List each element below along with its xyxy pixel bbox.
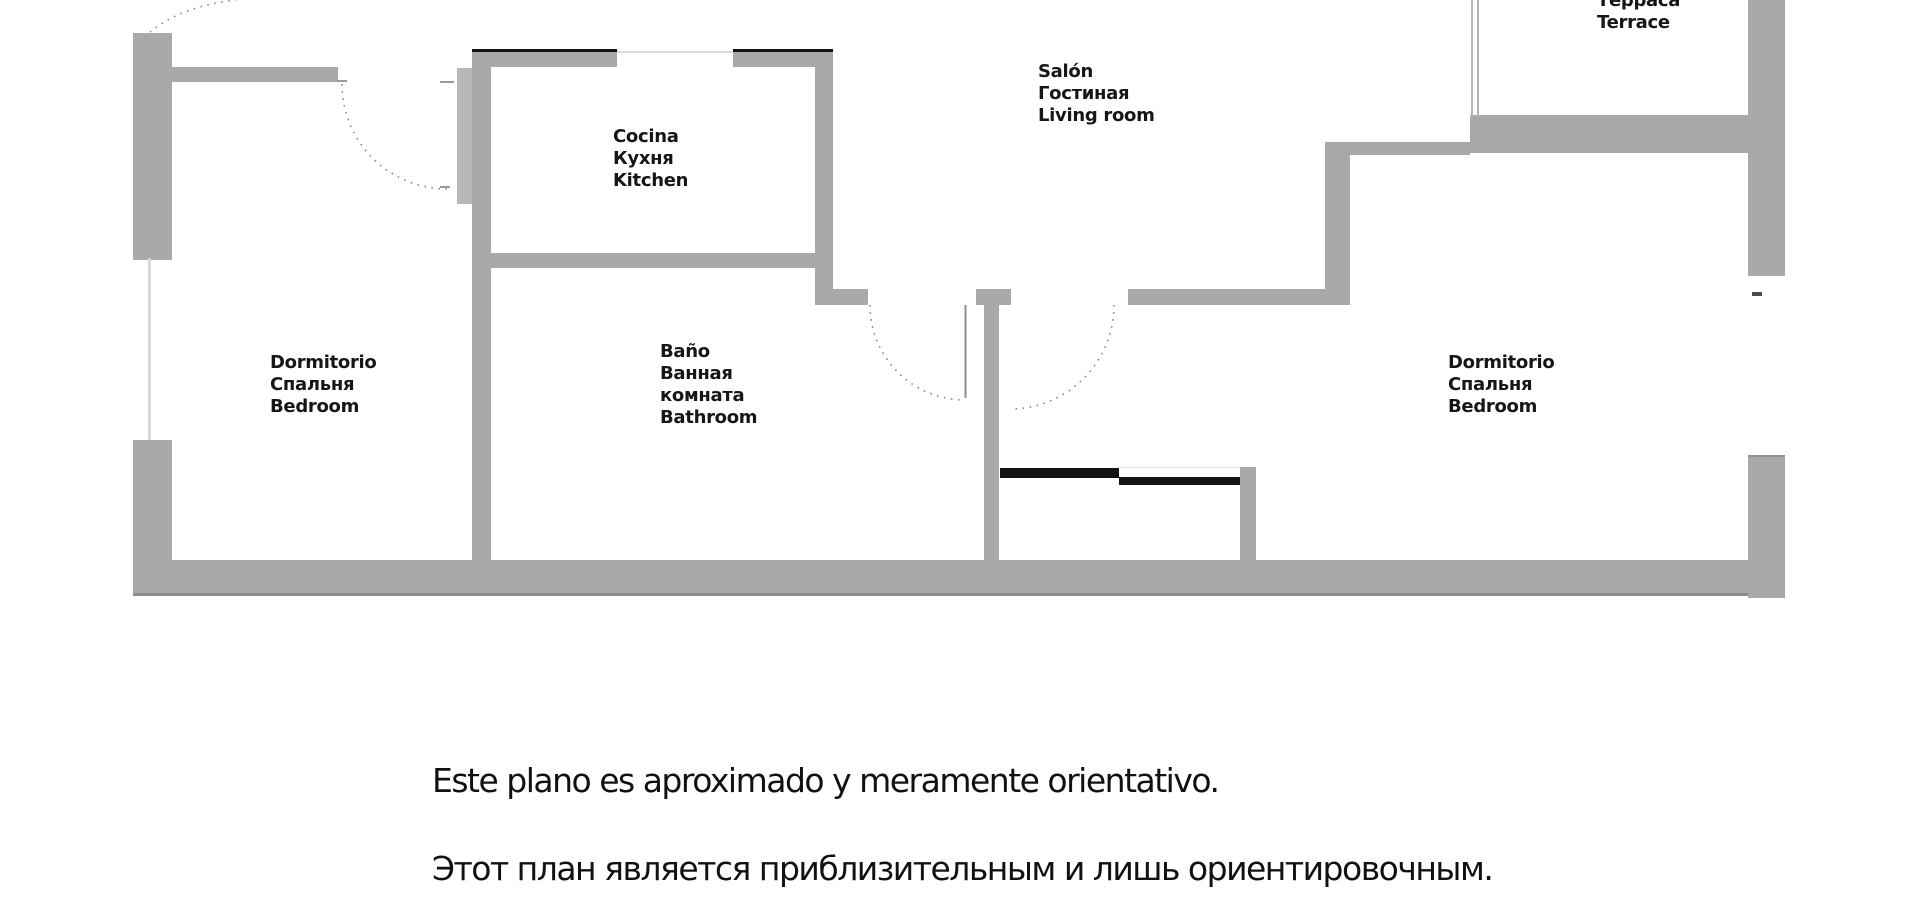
wall-divider-vertical	[472, 52, 491, 560]
wall-left-upper	[133, 33, 172, 260]
floor-plan-canvas: Dormitorio Спальня Bedroom Cocina Кухня …	[0, 0, 1920, 920]
wall-kitchen-right	[815, 52, 833, 305]
wall-bottom-edge	[133, 593, 1785, 596]
bedroom-right-label-en: Bedroom	[1448, 396, 1555, 418]
wall-terrace-band-a	[1350, 142, 1470, 155]
kitchen-label-ru: Кухня	[613, 148, 688, 170]
kitchen-window-line	[617, 51, 733, 53]
wall-right-lower	[1748, 455, 1785, 598]
wall-sliding-door-stub	[1240, 467, 1256, 560]
disclaimer-spanish: Este plano es aproximado y meramente ori…	[432, 760, 1218, 802]
kitchen-label-es: Cocina	[613, 126, 688, 148]
bedroom-left-door-arc	[342, 84, 447, 189]
door-jamb-1	[337, 80, 347, 82]
wall-kitchen-top-a	[472, 52, 617, 67]
bathroom-label-ru-2: комната	[660, 385, 757, 407]
bedroom-left-label-es: Dormitorio	[270, 352, 377, 374]
room-label-kitchen: Cocina Кухня Kitchen	[613, 126, 688, 192]
room-label-living-room: Salón Гостиная Living room	[1038, 61, 1155, 127]
sliding-door-panel-1	[1000, 468, 1119, 478]
sliding-door-track	[1119, 467, 1240, 468]
wall-bottom	[133, 560, 1785, 593]
bathroom-label-en: Bathroom	[660, 407, 757, 429]
wall-hall-vertical	[984, 305, 999, 560]
bedroom-left-label-en: Bedroom	[270, 396, 377, 418]
sliding-door-panel-2	[1119, 477, 1240, 485]
door-jamb-3	[440, 186, 450, 188]
bedroom-right-label-es: Dormitorio	[1448, 352, 1555, 374]
wall-right-upper	[1748, 0, 1785, 276]
terrace-glass-line-1	[1471, 0, 1473, 117]
terrace-label-ru: Терраса	[1597, 0, 1680, 12]
wall-bedroom-right-left	[1325, 142, 1350, 305]
bedroom-left-label-ru: Спальня	[270, 374, 377, 396]
terrace-label-en: Terrace	[1597, 12, 1680, 34]
living-room-label-es: Salón	[1038, 61, 1155, 83]
corridor-door-arc	[1010, 305, 1114, 409]
wall-hall-stub	[976, 289, 1011, 305]
bathroom-label-ru-1: Ванная	[660, 363, 757, 385]
room-label-bathroom: Baño Ванная комната Bathroom	[660, 341, 757, 429]
room-label-terrace: Терраса Terrace	[1597, 0, 1680, 34]
wall-bath-door-stub	[833, 289, 868, 305]
living-room-label-en: Living room	[1038, 105, 1155, 127]
radiator-mark	[1752, 292, 1762, 296]
wall-top-right-segment	[1128, 289, 1350, 305]
wall-kitchen-bottom	[487, 253, 815, 268]
door-jamb-2	[440, 81, 454, 83]
entry-door-arc	[150, 0, 236, 32]
wall-divider-thick-part	[457, 68, 472, 204]
living-room-label-ru: Гостиная	[1038, 83, 1155, 105]
disclaimer-russian: Этот план является приблизительным и лиш…	[432, 848, 1492, 890]
wall-bedroom-left-top	[172, 67, 338, 82]
window-line-left	[148, 258, 151, 444]
room-label-bedroom-right: Dormitorio Спальня Bedroom	[1448, 352, 1555, 418]
terrace-glass-line-2	[1477, 0, 1479, 117]
wall-terrace-band-b	[1470, 115, 1748, 153]
kitchen-label-en: Kitchen	[613, 170, 688, 192]
bedroom-right-label-ru: Спальня	[1448, 374, 1555, 396]
bathroom-label-es: Baño	[660, 341, 757, 363]
room-label-bedroom-left: Dormitorio Спальня Bedroom	[270, 352, 377, 418]
bathroom-door-arc	[870, 305, 965, 400]
